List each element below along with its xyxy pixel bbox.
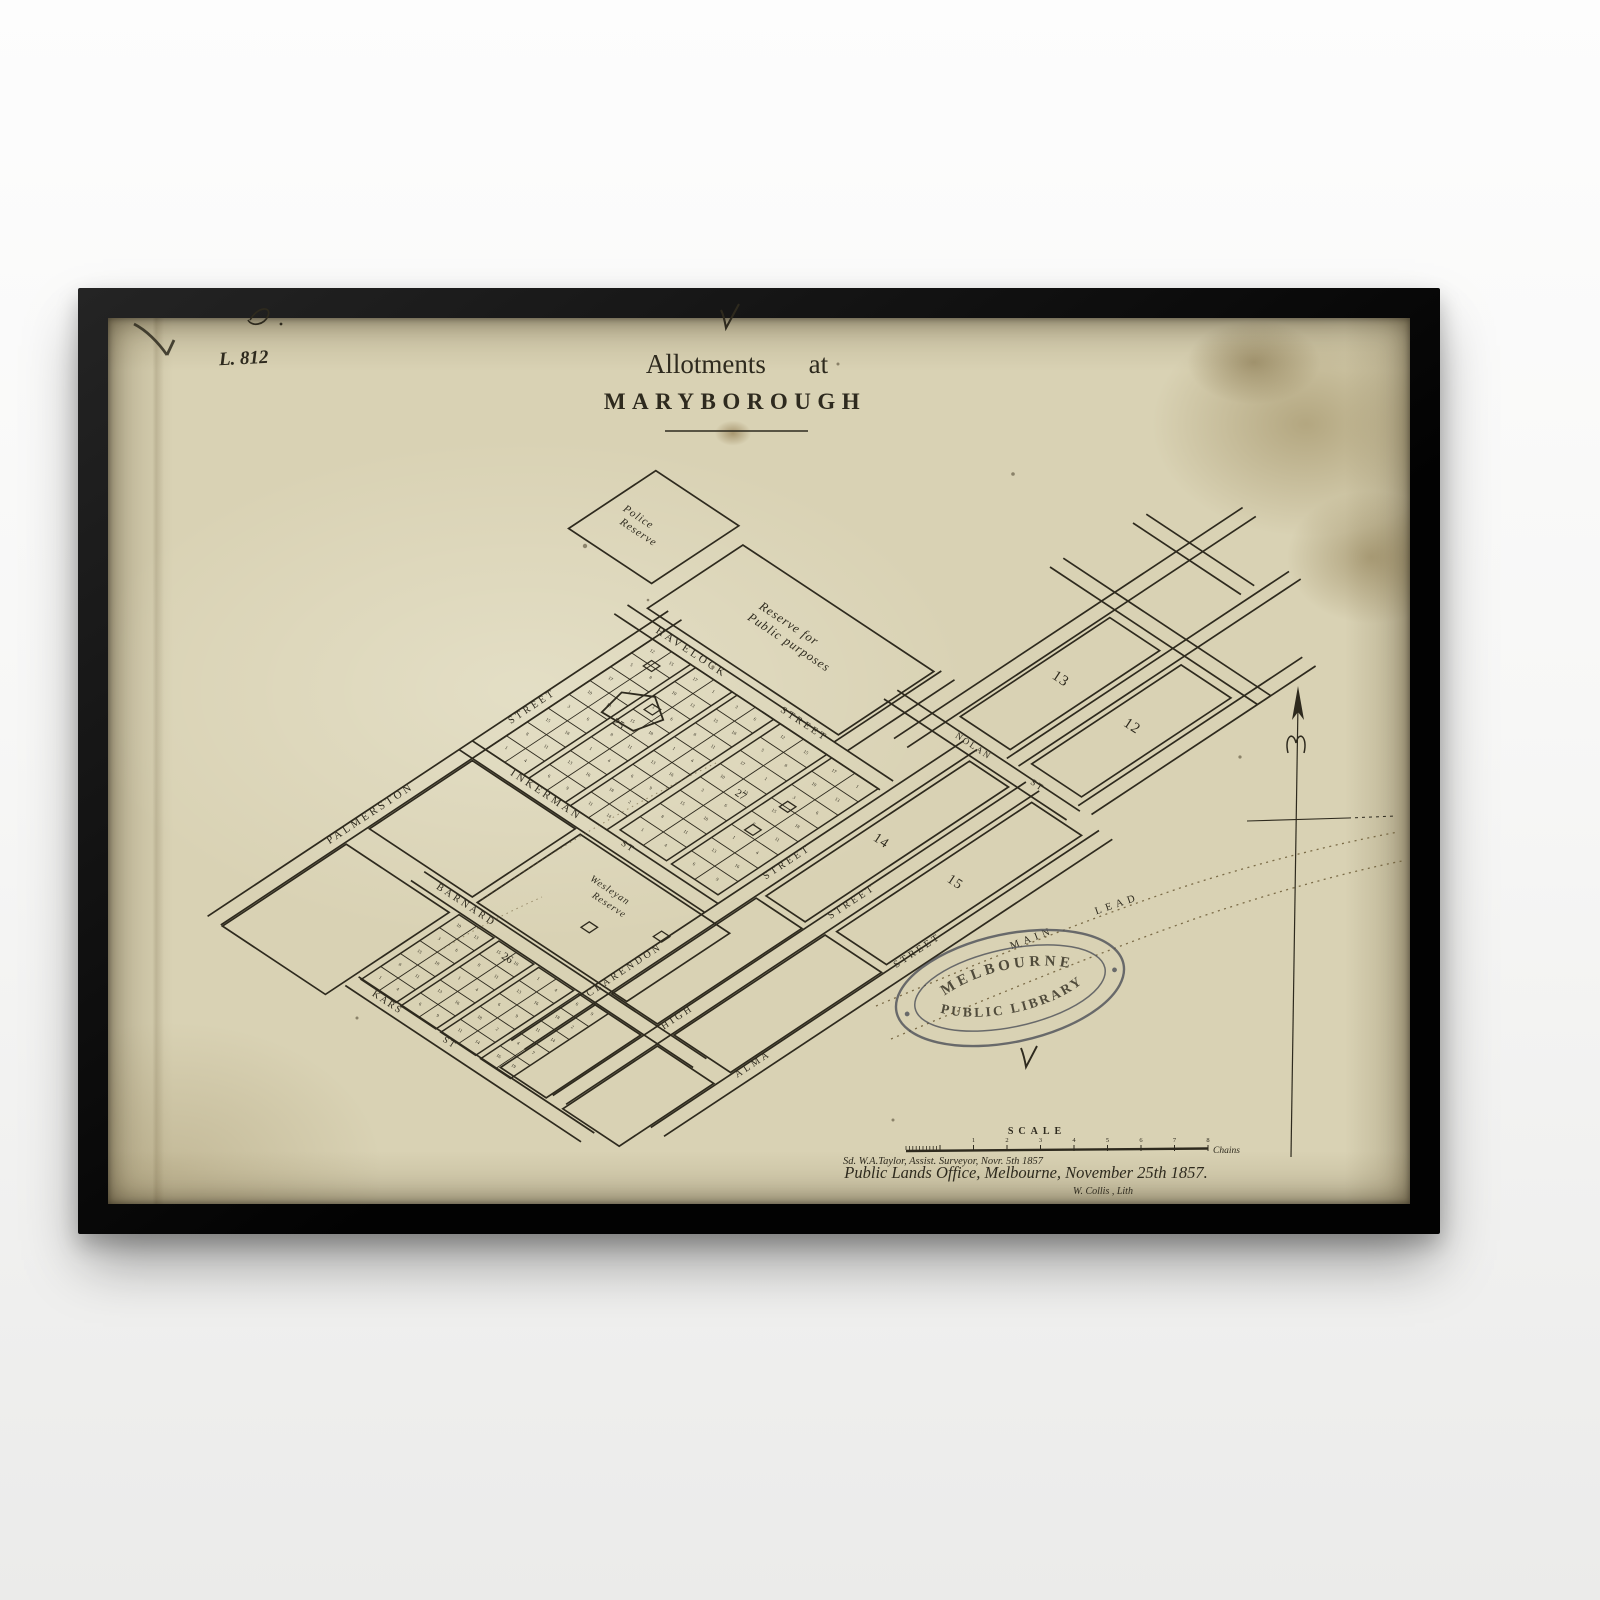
- photo-stage: 1481115183610131715812156913161481115183…: [0, 0, 1600, 1600]
- map-paper: [108, 318, 1410, 1204]
- picture-frame: [78, 288, 1440, 1234]
